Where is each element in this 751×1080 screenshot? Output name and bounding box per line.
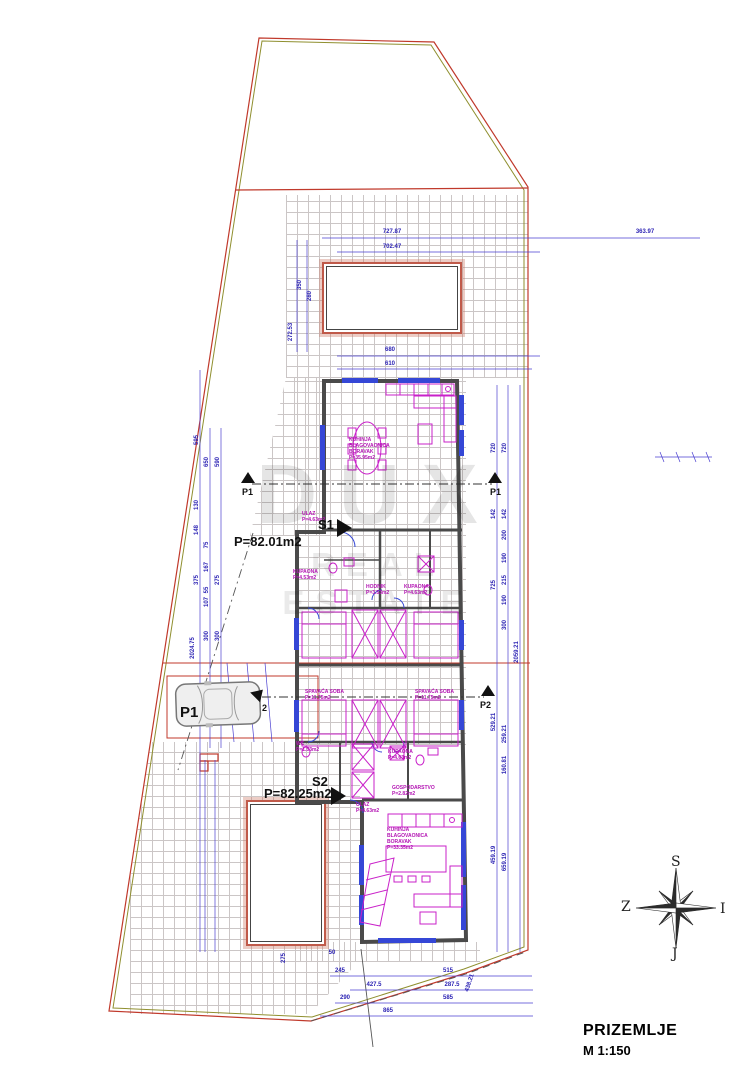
compass-east-label: I (720, 901, 726, 917)
section-p1-left-label: P1 (242, 487, 253, 497)
section-p2-right-label: P2 (480, 700, 491, 710)
floor-plan-canvas: DUX REAL ESTATE KUHINJA BLAGOVAONICA BOR… (0, 0, 751, 1080)
title-block: PRIZEMLJE M 1:150 (583, 1022, 677, 1058)
section-p2-right-arrow-icon (481, 685, 495, 696)
section-p2-left-label: 2 (262, 703, 267, 713)
compass-west-label: Z (621, 899, 631, 915)
parking-p1-label: P1 (180, 704, 198, 721)
unit-s1-label: S1 (318, 517, 334, 532)
compass-rose-icon (630, 862, 722, 954)
floor-title: PRIZEMLJE (583, 1022, 677, 1040)
unit-s2-entry-arrow-icon (331, 787, 346, 805)
section-p1-right-arrow-icon (488, 472, 502, 483)
unit-s1-entry-arrow-icon (337, 519, 352, 537)
section-p1-right-label: P1 (490, 487, 501, 497)
doors (308, 532, 404, 813)
unit-s1-area: P=82.01m2 (234, 534, 302, 549)
compass-north-label: S (671, 854, 681, 870)
unit-s2-area: P=82.25m2 (264, 786, 332, 801)
scale-label: M 1:150 (583, 1043, 677, 1058)
windows (294, 378, 466, 943)
compass-south-label: J (672, 946, 678, 962)
section-p1-left-arrow-icon (241, 472, 255, 483)
